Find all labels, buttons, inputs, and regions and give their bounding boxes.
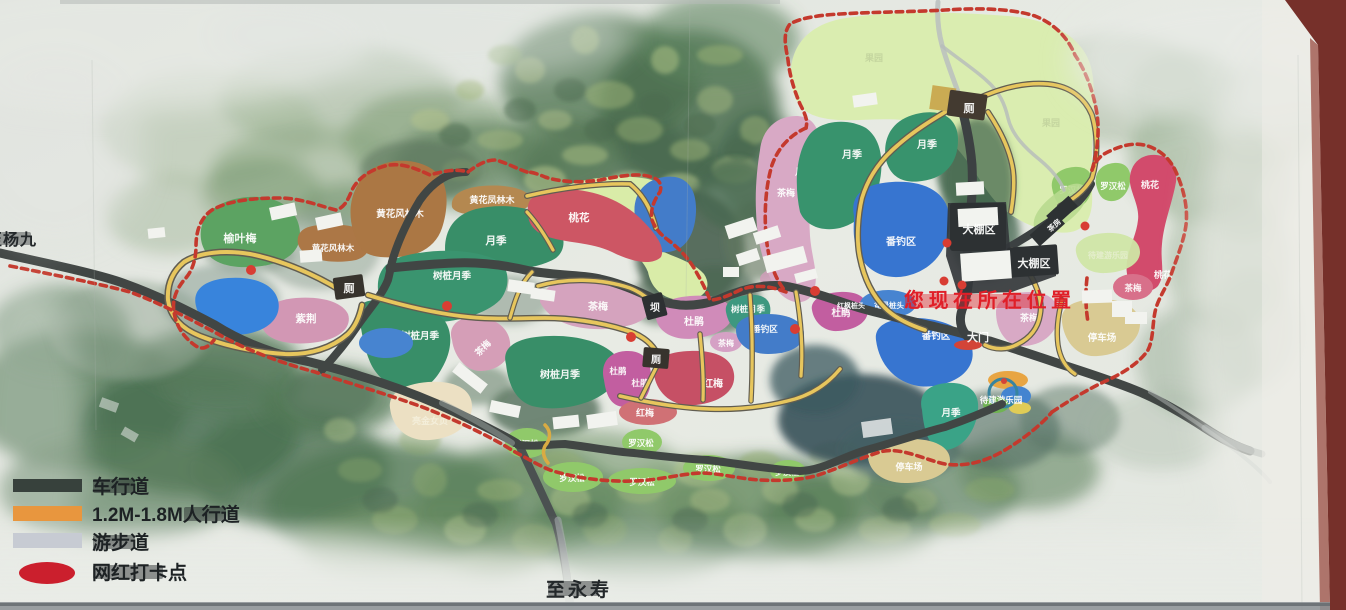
svg-text:至杨九: 至杨九 — [0, 230, 37, 249]
svg-text:网红打卡点: 网红打卡点 — [92, 561, 187, 584]
svg-text:车行道: 车行道 — [92, 475, 149, 498]
svg-text:您现在所在位置: 您现在所在位置 — [904, 288, 1076, 312]
svg-text:至永寿: 至永寿 — [546, 578, 612, 601]
svg-text:游步道: 游步道 — [92, 531, 149, 554]
svg-text:红枫桩头: 红枫桩头 — [837, 301, 865, 310]
svg-text:1.2M-1.8M人行道: 1.2M-1.8M人行道 — [92, 503, 240, 526]
